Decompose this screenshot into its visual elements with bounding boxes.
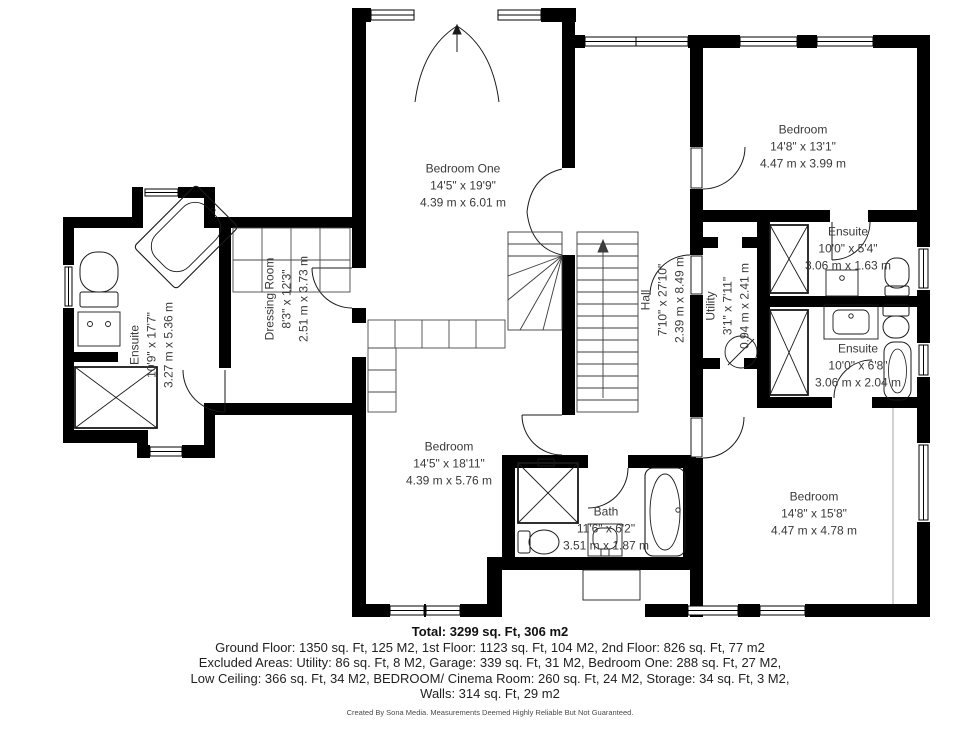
room-label-utility: Utility 3'1" x 7'11" 0.94 m x 2.41 m	[702, 263, 753, 349]
french-door-left-arc	[415, 26, 457, 102]
toilet	[518, 530, 559, 554]
room-size-metric: 3.27 m x 5.36 m	[161, 302, 178, 388]
room-name: Ensuite	[815, 340, 901, 357]
summary-excluded-2: Low Ceiling: 366 sq. Ft, 34 M2, BEDROOM/…	[0, 671, 980, 687]
total-area: Total: 3299 sq. Ft, 306 m2	[0, 624, 980, 640]
summary-walls: Walls: 314 sq. Ft, 29 m2	[0, 686, 980, 702]
door-leaf	[691, 418, 702, 457]
room-name: Bedroom One	[420, 160, 506, 177]
door-arc	[703, 417, 744, 458]
area-summary: Total: 3299 sq. Ft, 306 m2 Ground Floor:…	[0, 624, 980, 702]
room-size-imperial: 7'10" x 27'10"	[654, 257, 671, 343]
summary-excluded-1: Excluded Areas: Utility: 86 sq. Ft, 8 M2…	[0, 655, 980, 671]
room-size-imperial: 10'0" x 5'4"	[805, 240, 891, 257]
toilet	[883, 305, 909, 338]
french-door-right-arc	[457, 26, 499, 102]
room-name: Utility	[702, 263, 719, 349]
room-size-metric: 4.39 m x 6.01 m	[420, 195, 506, 212]
toilet	[80, 252, 118, 307]
sink	[78, 312, 120, 346]
room-name: Hall	[637, 257, 654, 343]
bathtub	[645, 468, 685, 556]
room-name: Dressing Room	[261, 256, 278, 342]
room-size-imperial: 11'6" x 6'2"	[563, 520, 649, 537]
room-size-imperial: 14'8" x 15'8"	[771, 505, 857, 522]
room-size-metric: 2.39 m x 8.49 m	[672, 257, 689, 343]
room-size-metric: 3.06 m x 1.63 m	[805, 258, 891, 275]
room-label-bedroom-bottom-right: Bedroom 14'8" x 15'8" 4.47 m x 4.78 m	[771, 488, 857, 539]
room-label-ensuite-left: Ensuite 10'9" x 17'7" 3.27 m x 5.36 m	[126, 302, 177, 388]
summary-floors: Ground Floor: 1350 sq. Ft, 125 M2, 1st F…	[0, 640, 980, 656]
room-size-imperial: 10'9" x 17'7"	[143, 302, 160, 388]
room-name: Ensuite	[805, 223, 891, 240]
sink	[824, 305, 878, 339]
room-label-bedroom-one: Bedroom One 14'5" x 19'9" 4.39 m x 6.01 …	[420, 160, 506, 211]
room-size-imperial: 8'3" x 12'3"	[278, 256, 295, 342]
room-size-metric: 0.94 m x 2.41 m	[737, 263, 754, 349]
room-label-dressing-room: Dressing Room 8'3" x 12'3" 2.51 m x 3.73…	[261, 256, 312, 342]
room-size-metric: 4.47 m x 4.78 m	[771, 523, 857, 540]
room-label-ensuite-right-top: Ensuite 10'0" x 5'4" 3.06 m x 1.63 m	[805, 223, 891, 274]
room-name: Bedroom	[406, 438, 492, 455]
room-label-bath: Bath 11'6" x 6'2" 3.51 m x 1.87 m	[563, 503, 649, 554]
door-leaf	[691, 148, 702, 188]
shower	[770, 310, 808, 395]
room-size-metric: 4.39 m x 5.76 m	[406, 473, 492, 490]
disclaimer-text: Created By Sona Media. Measurements Deem…	[0, 708, 980, 717]
shower	[770, 225, 808, 293]
door-swing-arrow	[453, 25, 461, 34]
double-door-arc	[527, 212, 562, 255]
double-door-arc	[527, 169, 562, 212]
porch-step	[583, 570, 640, 600]
door-arc	[588, 468, 628, 508]
door-arc	[312, 268, 352, 308]
stairs-up-arrow	[598, 240, 608, 252]
door-arc	[522, 415, 562, 455]
room-size-metric: 3.06 m x 2.04 m	[815, 375, 901, 392]
room-name: Bedroom	[771, 488, 857, 505]
room-size-imperial: 14'5" x 18'11"	[406, 455, 492, 472]
door-arc	[703, 147, 745, 189]
room-label-bedroom-bottom-middle: Bedroom 14'5" x 18'11" 4.39 m x 5.76 m	[406, 438, 492, 489]
room-size-metric: 3.51 m x 1.87 m	[563, 538, 649, 555]
room-label-ensuite-right-bottom: Ensuite 10'0" x 6'8" 3.06 m x 2.04 m	[815, 340, 901, 391]
room-size-metric: 2.51 m x 3.73 m	[296, 256, 313, 342]
room-size-imperial: 14'8" x 13'1"	[760, 138, 846, 155]
room-size-imperial: 14'5" x 19'9"	[420, 177, 506, 194]
floorplan-page: Bedroom One 14'5" x 19'9" 4.39 m x 6.01 …	[0, 0, 980, 735]
room-name: Bath	[563, 503, 649, 520]
door-leaf	[691, 256, 702, 294]
winder-stairs	[508, 232, 562, 330]
room-name: Bedroom	[760, 121, 846, 138]
fixtures	[75, 185, 911, 604]
room-size-imperial: 3'1" x 7'11"	[719, 263, 736, 349]
room-label-bedroom-top-right: Bedroom 14'8" x 13'1" 4.47 m x 3.99 m	[760, 121, 846, 172]
room-label-hall: Hall 7'10" x 27'10" 2.39 m x 8.49 m	[637, 257, 688, 343]
room-name: Ensuite	[126, 302, 143, 388]
room-size-imperial: 10'0" x 6'8"	[815, 357, 901, 374]
room-size-metric: 4.47 m x 3.99 m	[760, 156, 846, 173]
